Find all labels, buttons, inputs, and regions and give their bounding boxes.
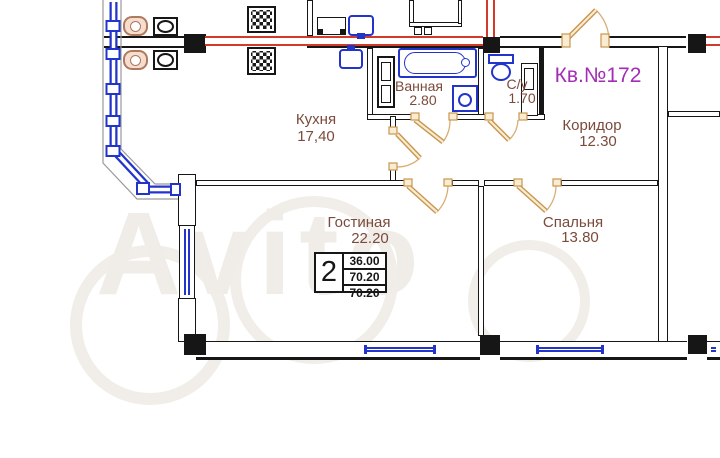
- floor-plan: Avito: [0, 0, 720, 458]
- door-posts: [389, 34, 609, 186]
- cold-water-pipe: [107, 2, 181, 195]
- room-area-kitchen: 17,40: [272, 129, 360, 146]
- door-arcs: [397, 10, 609, 212]
- room-area-wc: 1.70: [502, 91, 542, 106]
- stamp-total-area: 70.20: [344, 270, 385, 286]
- stamp-total-area-balcony: 70.20: [344, 286, 385, 300]
- room-label-kitchen: Кухня: [272, 112, 360, 129]
- stamp-living-area: 36.00: [344, 254, 385, 270]
- room-area-bathroom: 2.80: [388, 93, 458, 108]
- area-stamp-table: 2 36.00 70.20 70.20: [314, 252, 387, 293]
- stamp-rooms-count: 2: [316, 254, 344, 291]
- room-area-bedroom: 13.80: [537, 230, 623, 247]
- apartment-number-label: Кв.№172: [548, 64, 648, 88]
- room-area-corridor: 12.30: [560, 134, 636, 151]
- room-area-living: 22.20: [327, 231, 413, 248]
